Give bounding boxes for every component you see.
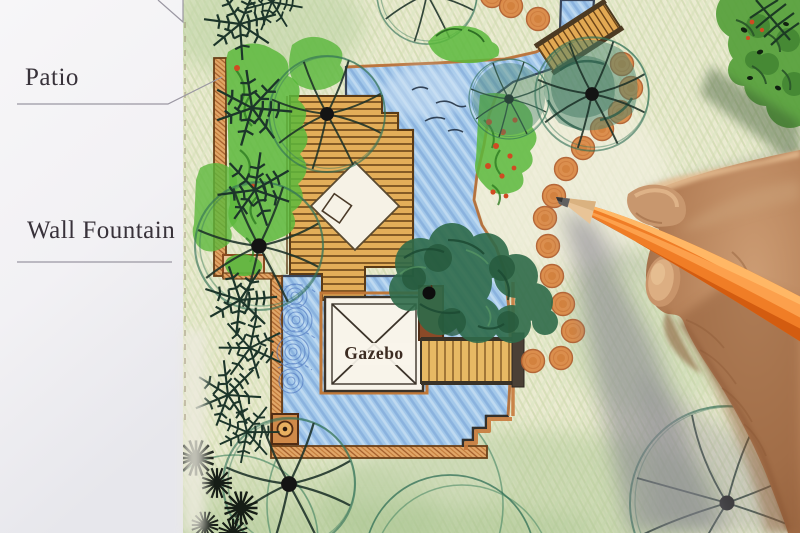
svg-text:Wall Fountain: Wall Fountain (27, 217, 175, 244)
svg-text:Gazebo: Gazebo (344, 343, 403, 363)
svg-text:Patio: Patio (25, 64, 79, 91)
